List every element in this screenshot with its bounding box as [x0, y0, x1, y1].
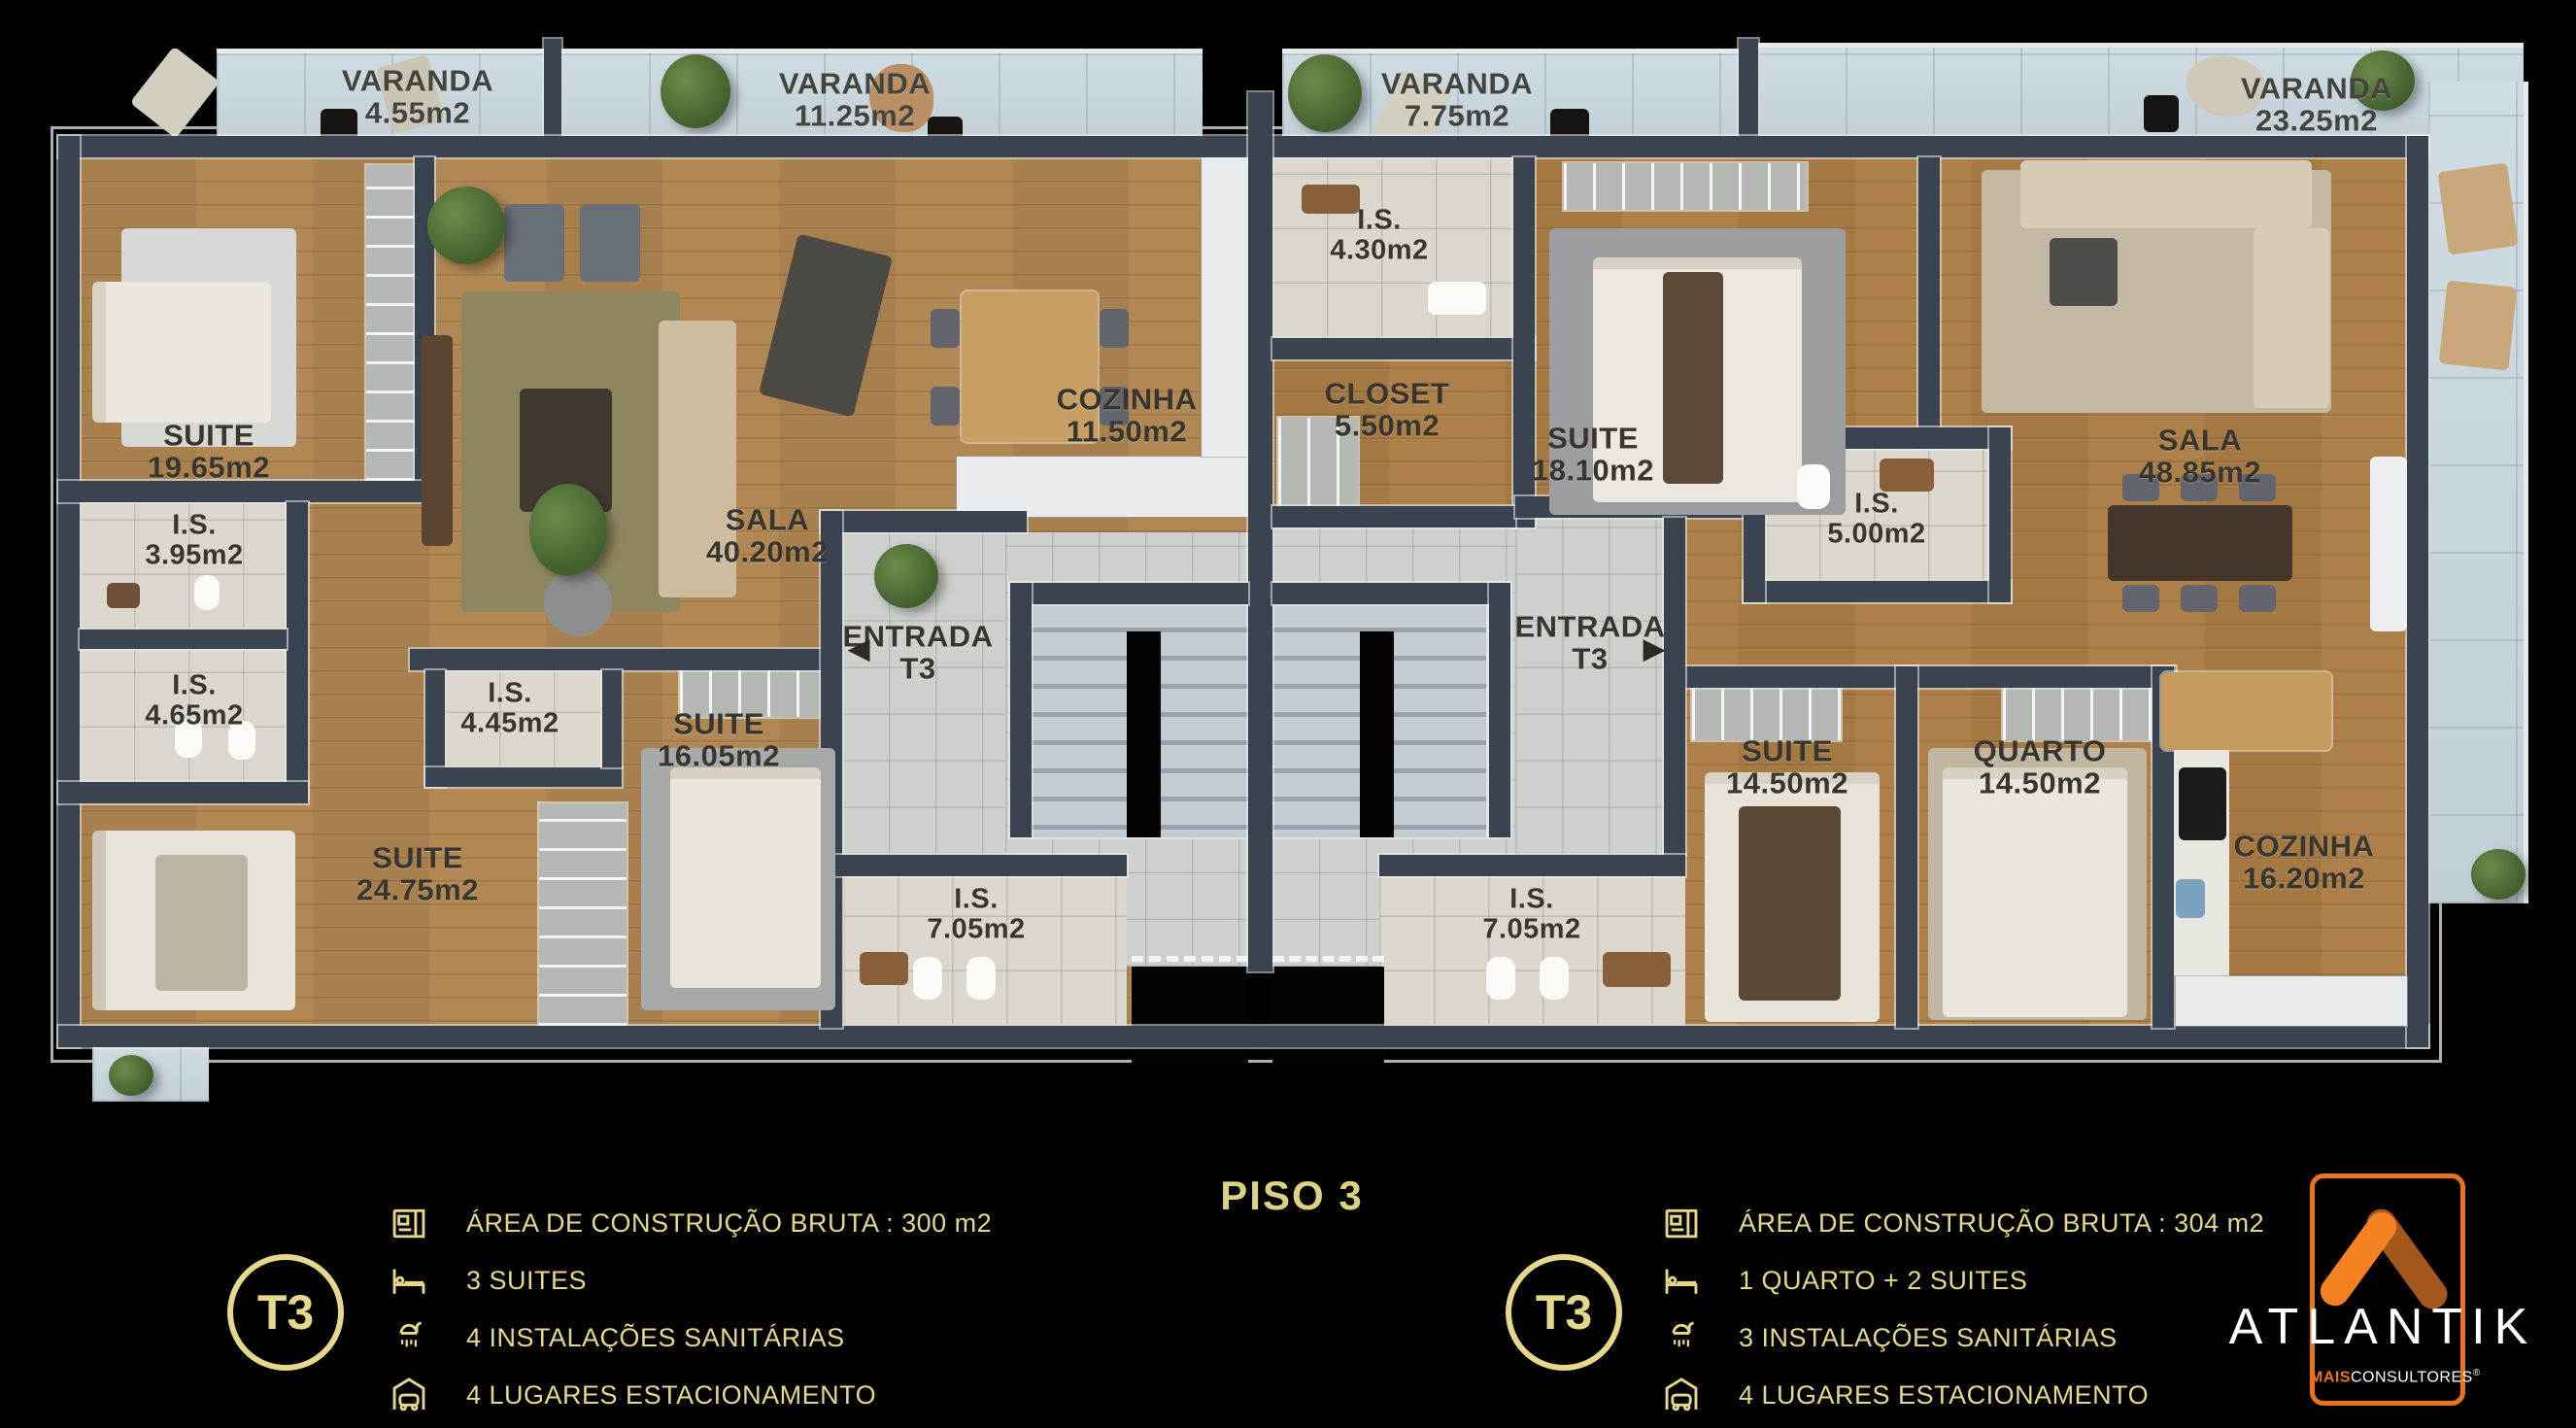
kitchen-cabinets: [2176, 976, 2407, 1026]
sofa: [2020, 160, 2312, 228]
wall: [1918, 157, 1940, 449]
brand-tagline-rest: CONSULTORES: [2351, 1369, 2473, 1385]
wardrobe-quarto: [2003, 688, 2154, 740]
wall: [821, 855, 1127, 876]
wall-stair-enclosure: [1489, 583, 1510, 837]
room-label-varanda-775: VARANDA7.75m2: [1381, 68, 1533, 133]
bed-blanket: [155, 855, 248, 991]
legend-row-text: 4 LUGARES ESTACIONAMENTO: [466, 1376, 876, 1414]
wall: [1989, 427, 2011, 602]
wall-perimeter-left: [58, 136, 80, 1047]
room-label-suite-2475: SUITE24.75m2: [356, 842, 479, 907]
registered-mark: ®: [2473, 1368, 2481, 1378]
bar-counter: [2370, 457, 2407, 631]
toilet: [1486, 957, 1515, 1000]
wall: [287, 502, 308, 799]
brand-tagline: MAISCONSULTORES®: [2310, 1368, 2456, 1386]
room-label-suite-1965: SUITE19.65m2: [148, 420, 270, 485]
wall: [1272, 506, 1515, 527]
plant: [109, 1055, 153, 1096]
dining-chair: [2181, 585, 2218, 612]
legend-row-text: 4 LUGARES ESTACIONAMENTO: [1739, 1376, 2149, 1414]
wall-perimeter-top: [58, 136, 2428, 157]
floor-plan-page: VARANDA4.55m2 VARANDA11.25m2 VARANDA7.75…: [0, 0, 2576, 1428]
typology-badge-left: T3: [227, 1254, 344, 1371]
dining-table: [2108, 505, 2292, 581]
entry-arrow-right-icon: ▶: [1643, 632, 1665, 666]
wall: [425, 767, 622, 787]
bed: [670, 767, 821, 988]
room-label-is-430: I.S.4.30m2: [1330, 206, 1428, 267]
kitchen-counter-left: [957, 457, 1258, 517]
door-mat: [2144, 95, 2179, 132]
kitchen-sink: [2176, 879, 2205, 918]
room-label-quarto: QUARTO14.50m2: [1974, 735, 2107, 800]
legend-row-text: 3 SUITES: [466, 1261, 587, 1300]
terrace-lounger: [2439, 280, 2518, 370]
blueprint-icon: [1659, 1201, 1704, 1245]
blueprint-icon: [387, 1201, 431, 1245]
legend-row-text: 3 INSTALAÇÕES SANITÁRIAS: [1739, 1318, 2118, 1357]
balcony-divider-wall: [1739, 39, 1758, 140]
wall: [1272, 338, 1535, 359]
room-label-closet: CLOSET5.50m2: [1325, 378, 1450, 443]
void-guardrail: [1132, 956, 1248, 962]
typology-badge-right: T3: [1506, 1254, 1622, 1371]
room-label-is-705-right: I.S.7.05m2: [1482, 885, 1580, 946]
stairwell-void-right: [1360, 631, 1394, 837]
pouf: [544, 568, 612, 636]
void-guardrail: [1272, 956, 1384, 962]
brand-tagline-bold: MAIS: [2310, 1369, 2351, 1385]
legend-row-text: 1 QUARTO + 2 SUITES: [1739, 1261, 2027, 1300]
plant: [529, 484, 607, 576]
room-label-is-445: I.S.4.45m2: [460, 679, 559, 740]
entry-arrow-left-icon: ◀: [847, 632, 869, 666]
room-label-suite-1810: SUITE18.10m2: [1532, 423, 1654, 488]
plant: [1288, 54, 1362, 132]
legend-row-text: ÁREA DE CONSTRUÇÃO BRUTA : 300 m2: [466, 1204, 992, 1242]
wardrobe-suite-1450: [1692, 688, 1841, 740]
dining-chair: [2239, 585, 2276, 612]
bathtub: [1428, 282, 1486, 315]
wall: [1664, 518, 1685, 855]
armchair: [580, 204, 640, 282]
room-label-is-500: I.S.5.00m2: [1827, 490, 1925, 551]
bidet: [1540, 957, 1569, 1000]
terrace-lounger: [2437, 162, 2518, 255]
wall: [821, 511, 1027, 532]
room-label-varanda-2325: VARANDA23.25m2: [2241, 73, 2392, 138]
tv-cabinet: [422, 335, 453, 546]
balcony-divider-wall: [544, 39, 561, 140]
wall: [80, 629, 287, 649]
lounge-chair: [130, 46, 220, 138]
floor-title: PISO 3: [1220, 1173, 1363, 1219]
wall-central: [1248, 92, 1272, 971]
sofa: [2254, 228, 2329, 408]
building-void: [1132, 967, 1248, 1064]
legend-row-text: 4 INSTALAÇÕES SANITÁRIAS: [466, 1318, 845, 1357]
dining-chair: [931, 387, 960, 425]
room-label-suite-1605: SUITE16.05m2: [658, 708, 780, 773]
entry-hall-right-floor: [1515, 518, 1685, 855]
shower-icon: [1659, 1315, 1704, 1360]
wall-stair-enclosure: [1272, 583, 1510, 604]
wall-stair-enclosure: [1010, 583, 1248, 604]
bidet: [966, 957, 996, 1000]
vanity: [107, 583, 140, 608]
cooktop: [2179, 767, 2226, 840]
room-label-cozinha-right: COZINHA16.20m2: [2234, 831, 2375, 896]
room-label-is-395: I.S.3.95m2: [145, 511, 243, 572]
plant: [427, 187, 505, 264]
dining-chair: [931, 309, 960, 348]
plant: [874, 544, 938, 608]
armchair: [2050, 238, 2118, 306]
wall-stair-enclosure: [1010, 583, 1032, 837]
kitchen-island: [2161, 672, 2331, 750]
room-label-cozinha-left: COZINHA11.50m2: [1057, 384, 1198, 449]
shower-icon: [387, 1315, 431, 1360]
room-label-sala-right: SALA48.85m2: [2139, 425, 2261, 490]
bed-blanket: [1739, 806, 1841, 1001]
garage-icon: [387, 1373, 431, 1417]
armchair: [504, 204, 564, 282]
vanity: [1603, 952, 1671, 987]
building-void: [1272, 967, 1384, 1064]
wardrobe-corridor: [539, 803, 627, 1026]
toilet: [913, 957, 942, 1000]
vanity: [860, 952, 908, 985]
dining-chair: [1100, 309, 1129, 348]
room-label-varanda-1125: VARANDA11.25m2: [779, 68, 931, 133]
plant: [661, 54, 730, 128]
legend-row-text: ÁREA DE CONSTRUÇÃO BRUTA : 304 m2: [1739, 1204, 2264, 1242]
bed: [92, 282, 271, 423]
brand-name: ATLANTIK: [2222, 1298, 2543, 1356]
wall: [1896, 666, 1917, 1028]
wall-perimeter-right: [2407, 136, 2428, 1047]
wall: [602, 670, 622, 767]
wall: [1685, 666, 2176, 688]
room-label-sala-left: SALA40.20m2: [706, 504, 829, 569]
wall: [58, 782, 308, 803]
stairwell-void-left: [1127, 631, 1161, 837]
toilet: [194, 575, 220, 610]
room-label-varanda-455: VARANDA4.55m2: [342, 65, 493, 130]
wall: [1379, 855, 1685, 876]
bed-runner: [1663, 272, 1723, 484]
room-label-is-705-left: I.S.7.05m2: [927, 885, 1025, 946]
bed-icon: [387, 1258, 431, 1303]
room-label-suite-1450: SUITE14.50m2: [1726, 735, 1848, 800]
wardrobe-suite-1810: [1564, 163, 1807, 210]
bed: [1943, 767, 2127, 1017]
wall-perimeter-bottom: [58, 1026, 2428, 1047]
wall: [1744, 581, 2011, 602]
bed-icon: [1659, 1258, 1704, 1303]
dining-chair: [2122, 585, 2159, 612]
plant: [2471, 849, 2525, 900]
wall: [410, 649, 840, 670]
toilet: [1797, 464, 1830, 509]
vanity: [1880, 459, 1934, 492]
garage-icon: [1659, 1373, 1704, 1417]
room-label-is-465: I.S.4.65m2: [145, 671, 243, 732]
wardrobe-suite-1965: [366, 165, 415, 481]
